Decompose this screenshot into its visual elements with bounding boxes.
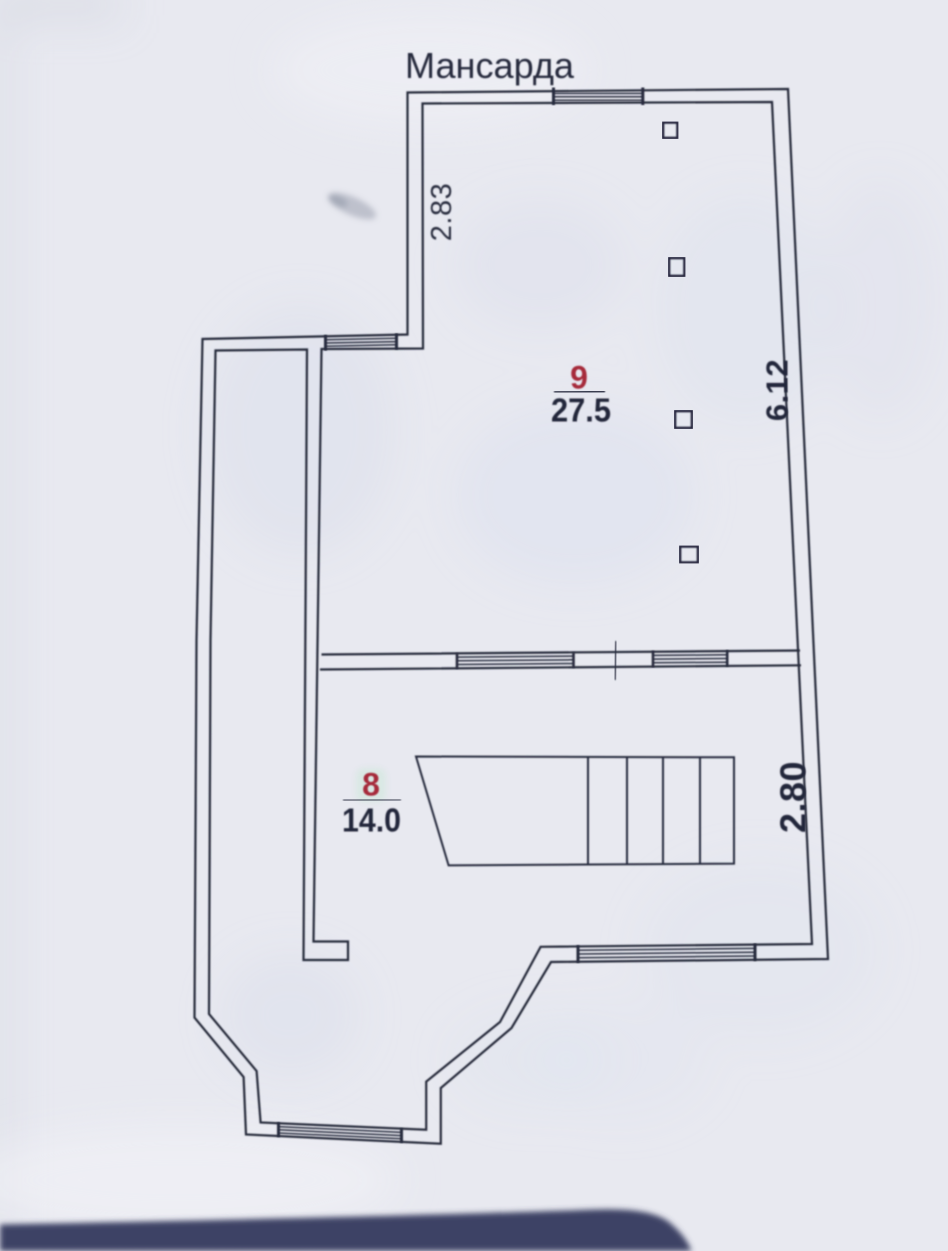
svg-text:6.12: 6.12 [760, 359, 795, 421]
svg-text:Мансарда: Мансарда [405, 45, 575, 86]
svg-text:8: 8 [362, 767, 380, 803]
svg-text:2.80: 2.80 [773, 761, 814, 833]
svg-text:9: 9 [570, 360, 588, 396]
svg-text:27.5: 27.5 [551, 392, 611, 429]
svg-text:2.83: 2.83 [426, 183, 458, 241]
svg-text:14.0: 14.0 [342, 802, 401, 839]
